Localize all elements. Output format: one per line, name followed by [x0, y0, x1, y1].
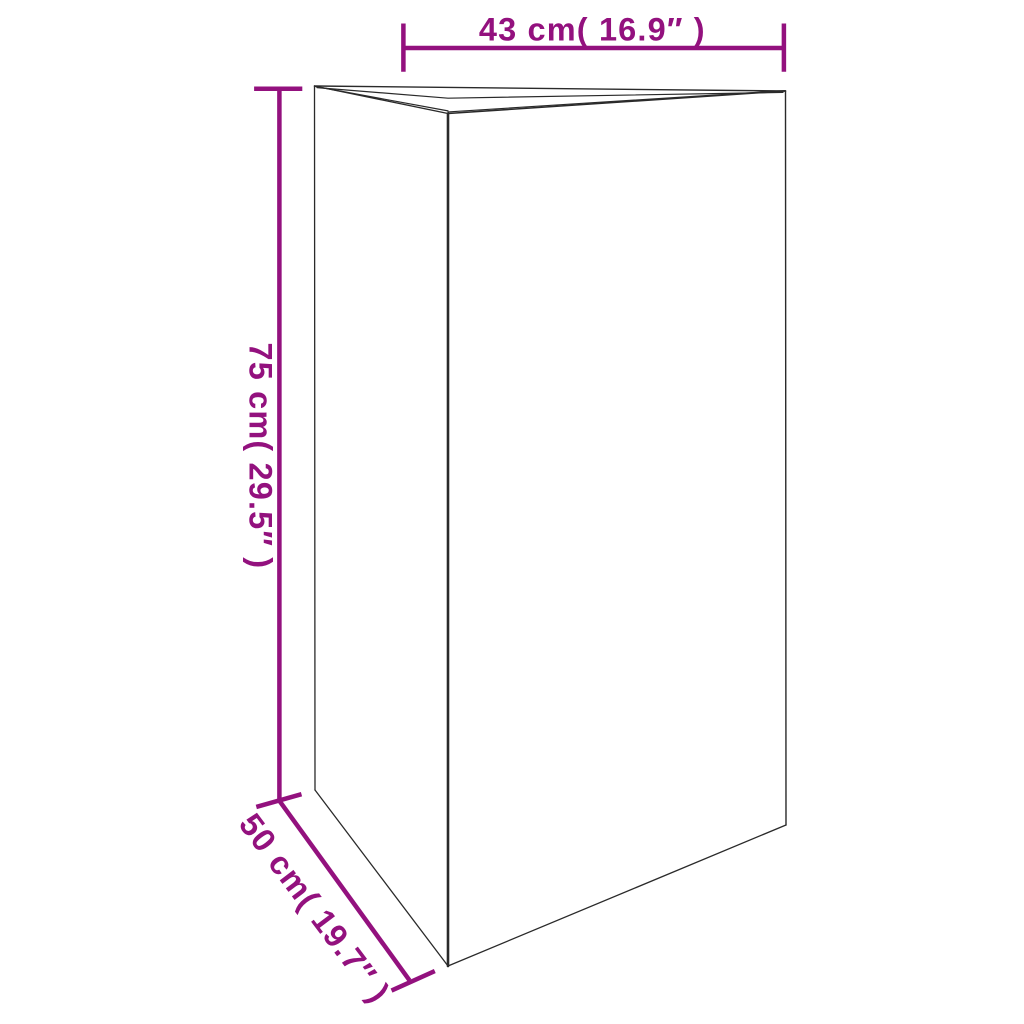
svg-text:43 cm( 16.9″ ): 43 cm( 16.9″ ) [479, 11, 706, 47]
svg-text:75 cm( 29.5″ ): 75 cm( 29.5″ ) [243, 343, 279, 570]
